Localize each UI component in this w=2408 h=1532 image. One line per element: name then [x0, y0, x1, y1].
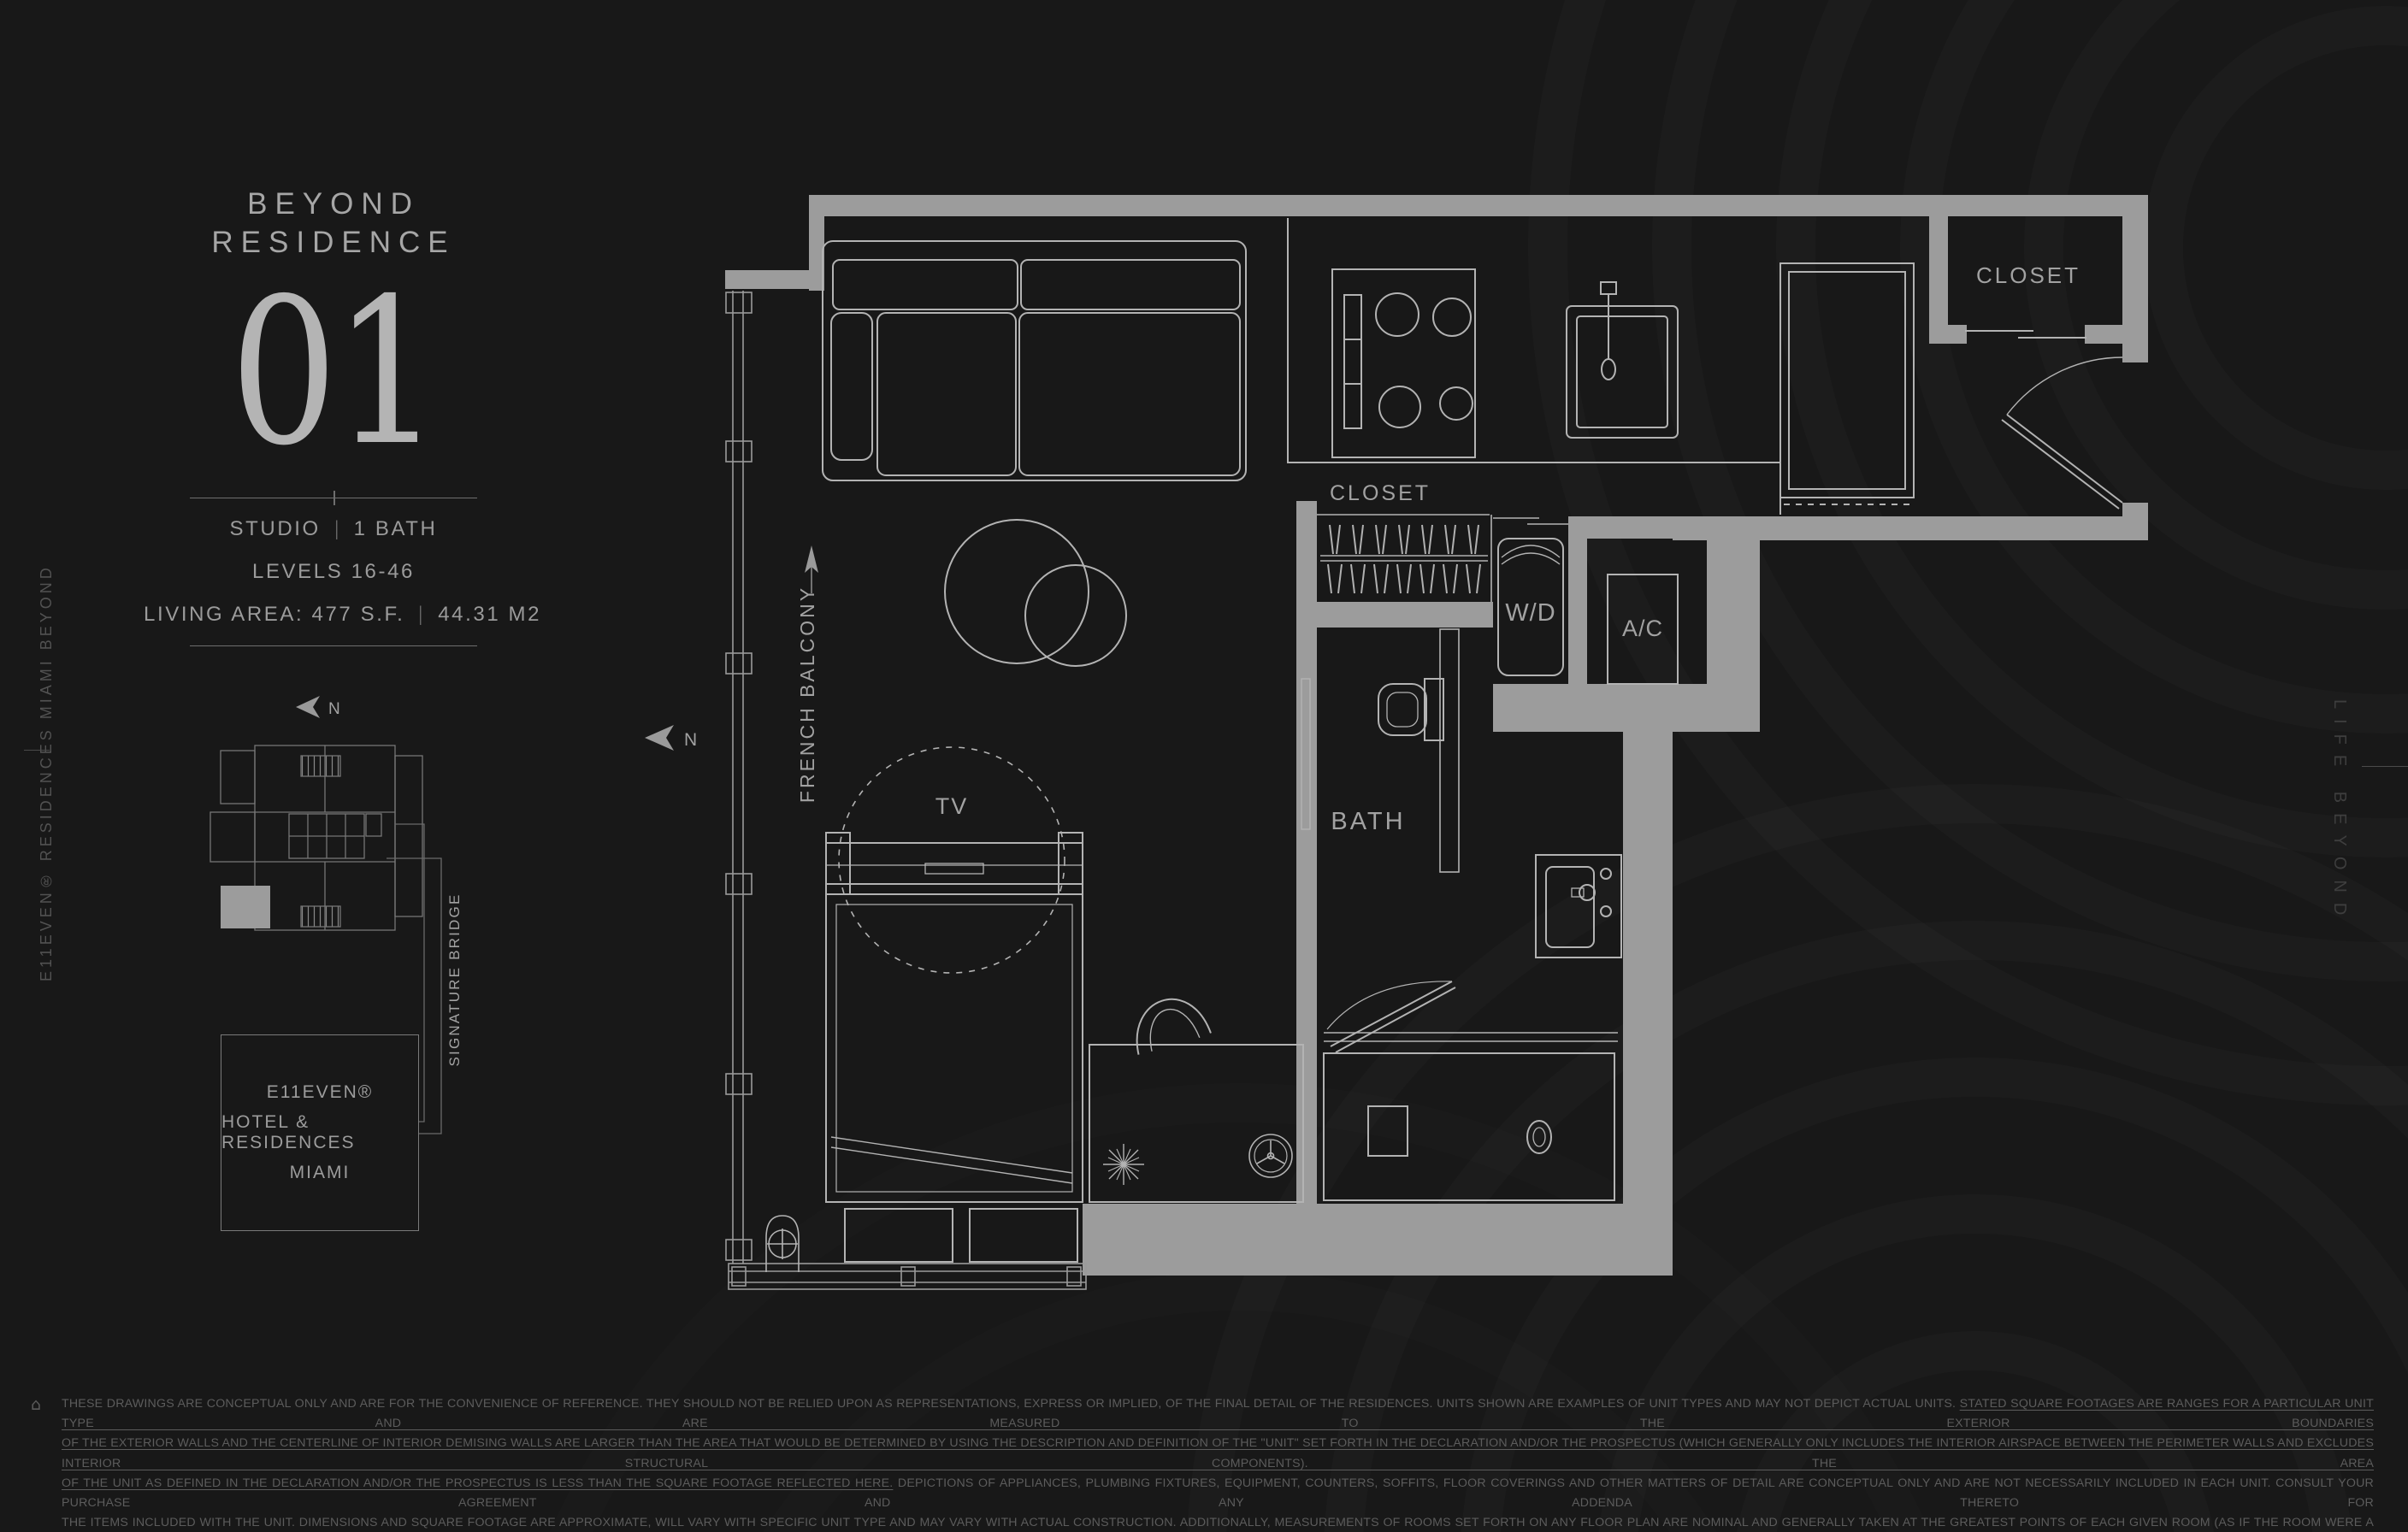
- signature-bridge-label: SIGNATURE BRIDGE: [446, 893, 463, 1066]
- keyplan-north-label: N: [328, 700, 340, 718]
- fan-ornament: [1249, 1134, 1292, 1177]
- coffee-tables: [945, 520, 1126, 666]
- tv-label: TV: [935, 793, 969, 819]
- wd-label: W/D: [1505, 599, 1555, 627]
- keyplan-north-arrow-icon: N: [296, 696, 340, 718]
- bath-partition: [1440, 629, 1459, 872]
- brand-box-line3: MIAMI: [290, 1163, 351, 1183]
- french-balcony-window: [726, 291, 752, 1264]
- hall-closet: [1317, 515, 1491, 602]
- brochure-page: CLOSET CLOSET W/D A/C BATH TV FRENCH BAL…: [0, 0, 2408, 1532]
- residence-title-line1: BEYOND: [144, 185, 523, 223]
- unit-levels: LEVELS 16-46: [144, 560, 523, 584]
- toilet: [1378, 679, 1443, 740]
- area-m2: 44.31 M2: [438, 603, 541, 626]
- brand-box: E11EVEN® HOTEL & RESIDENCES MIAMI: [221, 1034, 419, 1231]
- washer-dryer: [1493, 518, 1568, 675]
- unit-bath: 1 BATH: [354, 517, 438, 540]
- brand-box-line2: HOTEL & RESIDENCES: [221, 1112, 418, 1153]
- closet-hall-label: CLOSET: [1330, 481, 1431, 505]
- disclaimer-line: OF THE EXTERIOR WALLS AND THE CENTERLINE…: [62, 1434, 2374, 1473]
- divider-bottom: [190, 645, 477, 646]
- tv-swivel-radius: [839, 747, 1065, 973]
- tv-console: [826, 833, 1083, 894]
- left-edge-tick: [24, 750, 50, 751]
- equal-housing-icon: ⌂: [31, 1395, 41, 1414]
- disclaimer-line: OF THE UNIT AS DEFINED IN THE DECLARATIO…: [62, 1474, 2374, 1513]
- unit-type: STUDIO: [230, 517, 321, 540]
- right-edge-tick: [2362, 766, 2408, 767]
- unit-area: LIVING AREA: 477 S.F.|44.31 M2: [144, 603, 523, 627]
- french-balcony-label: FRENCH BALCONY: [796, 586, 818, 803]
- disclaimer-line: THESE DRAWINGS ARE CONCEPTUAL ONLY AND A…: [62, 1394, 2374, 1434]
- bed-storage-right: [970, 1209, 1077, 1262]
- legal-disclaimer: THESE DRAWINGS ARE CONCEPTUAL ONLY AND A…: [62, 1394, 2374, 1532]
- unit-number: 01: [174, 267, 493, 479]
- sofa: [823, 241, 1246, 480]
- closet-entry-label: CLOSET: [1976, 262, 2080, 288]
- disclaimer-line: THE ITEMS INCLUDED WITH THE UNIT. DIMENS…: [62, 1513, 2374, 1532]
- spec-separator: |: [329, 517, 345, 541]
- brand-box-line1: E11EVEN®: [267, 1082, 373, 1103]
- tagline-vertical-right: LIFE BEYOND: [2329, 699, 2349, 947]
- title-block: BEYOND RESIDENCE 01 STUDIO|1 BATH LEVELS…: [144, 185, 523, 646]
- ac-label: A/C: [1622, 616, 1663, 641]
- keyplan-unit-highlight: [221, 886, 270, 928]
- plan-north-arrow-icon: N: [645, 725, 697, 751]
- area-separator: |: [413, 603, 429, 627]
- divider-top: [190, 498, 477, 498]
- bed: [826, 894, 1083, 1202]
- keyplan-building: [210, 745, 422, 930]
- area-sf: LIVING AREA: 477 S.F.: [144, 603, 404, 626]
- unit-spec: STUDIO|1 BATH: [144, 517, 523, 541]
- divider-tick: [333, 491, 335, 505]
- cooktop: [1332, 269, 1475, 457]
- flower-ornament: [1103, 1144, 1144, 1185]
- plan-north-label: N: [684, 730, 697, 750]
- bath-label: BATH: [1331, 808, 1405, 835]
- brand-vertical-left: E11EVEN® RESIDENCES MIAMI BEYOND: [38, 554, 56, 981]
